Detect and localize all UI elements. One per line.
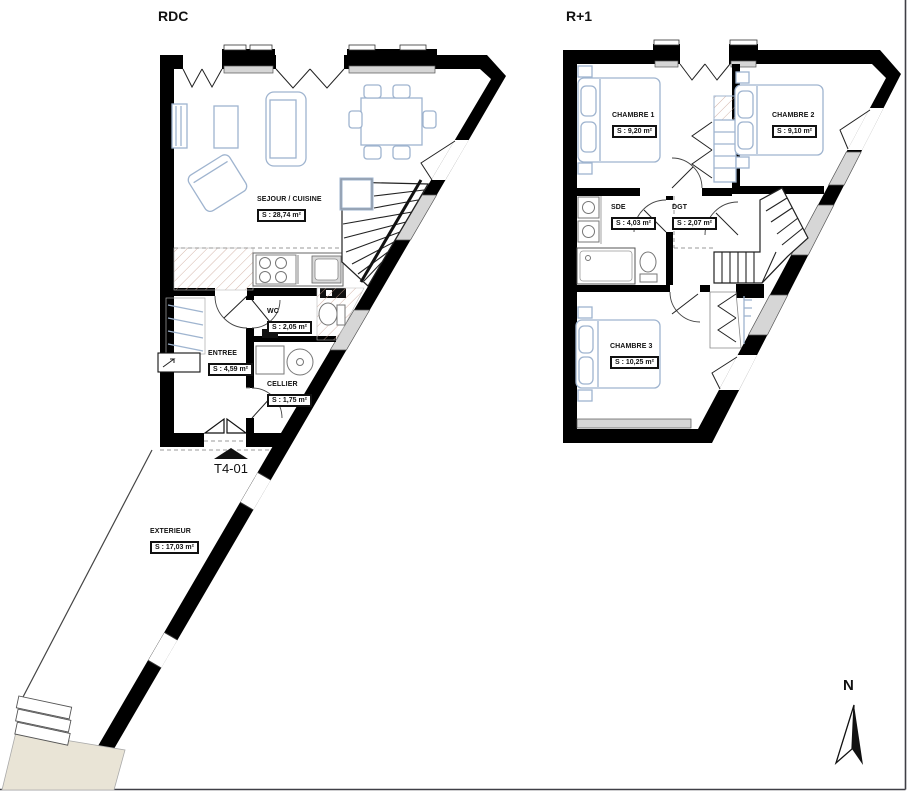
- floorplan-page: RDC R+1 SEJOUR / CUISINE S : 28,74 m² WC…: [0, 0, 911, 795]
- plan-title-r1: R+1: [566, 8, 592, 24]
- room-name: CHAMBRE 1: [612, 112, 657, 119]
- room-label-entree: ENTREE S : 4,59 m²: [208, 350, 253, 376]
- room-name: EXTERIEUR: [150, 528, 199, 535]
- room-area: S : 17,03 m²: [150, 541, 199, 554]
- room-name: SEJOUR / CUISINE: [257, 196, 322, 203]
- room-label-chambre-3: CHAMBRE 3 S : 10,25 m²: [610, 343, 659, 369]
- room-name: SDE: [611, 204, 656, 211]
- room-label-sejour-cuisine: SEJOUR / CUISINE S : 28,74 m²: [257, 196, 322, 222]
- room-name: WC: [267, 308, 312, 315]
- room-label-sde: SDE S : 4,03 m²: [611, 204, 656, 230]
- north-label: N: [843, 677, 854, 694]
- room-label-cellier: CELLIER S : 1,75 m²: [267, 381, 312, 407]
- plan-r1: [563, 40, 901, 443]
- north-arrow-icon: [836, 705, 863, 765]
- room-label-exterieur: EXTERIEUR S : 17,03 m²: [150, 528, 199, 554]
- room-area: S : 28,74 m²: [257, 209, 306, 222]
- room-label-chambre-1: CHAMBRE 1 S : 9,20 m²: [612, 112, 657, 138]
- plan-title-rdc: RDC: [158, 8, 188, 24]
- room-name: CELLIER: [267, 381, 312, 388]
- room-area: S : 4,03 m²: [611, 217, 656, 230]
- room-name: CHAMBRE 3: [610, 343, 659, 350]
- room-area: S : 1,75 m²: [267, 394, 312, 407]
- room-name: DGT: [672, 204, 717, 211]
- room-name: CHAMBRE 2: [772, 112, 817, 119]
- room-area: S : 4,59 m²: [208, 363, 253, 376]
- room-area: S : 9,10 m²: [772, 125, 817, 138]
- exterieur: [2, 439, 290, 790]
- room-name: ENTREE: [208, 350, 253, 357]
- room-area: S : 2,05 m²: [267, 321, 312, 334]
- room-area: S : 9,20 m²: [612, 125, 657, 138]
- room-label-chambre-2: CHAMBRE 2 S : 9,10 m²: [772, 112, 817, 138]
- room-area: S : 10,25 m²: [610, 356, 659, 369]
- unit-label: T4-01: [203, 461, 259, 476]
- room-area: S : 2,07 m²: [672, 217, 717, 230]
- room-label-wc: WC S : 2,05 m²: [267, 308, 312, 334]
- plan-rdc: [158, 45, 506, 450]
- room-label-dgt: DGT S : 2,07 m²: [672, 204, 717, 230]
- rdc-walls: [160, 45, 506, 449]
